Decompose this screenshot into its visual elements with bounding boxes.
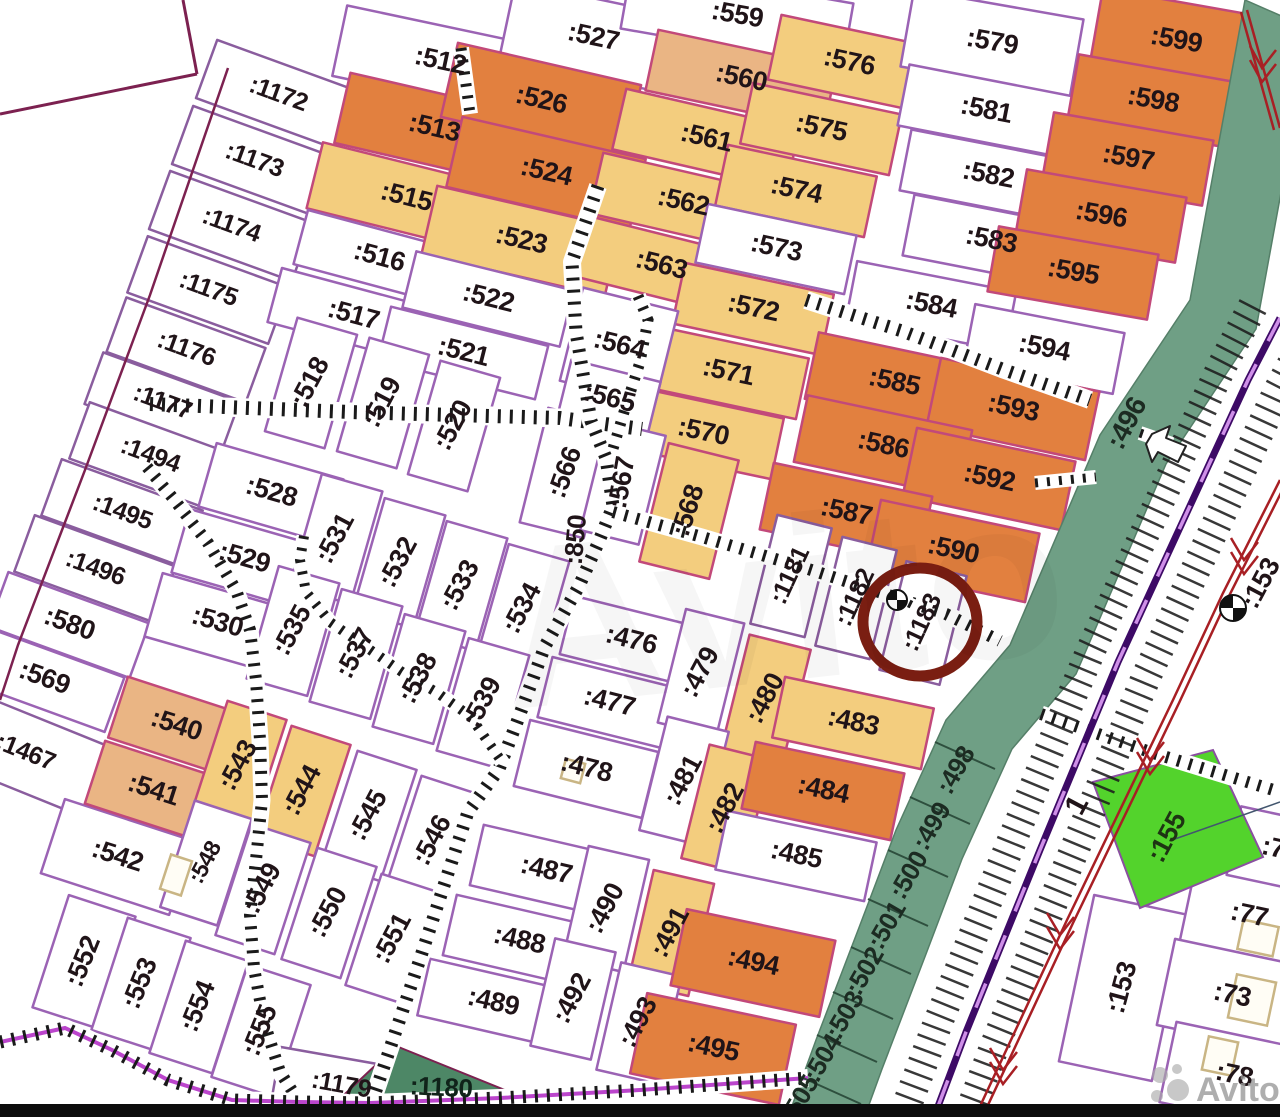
avito-logo-icon-0 [1152, 1067, 1168, 1083]
map-canvas: :1172:1173:1174:1175:1176:1177:1494:1495… [0, 0, 1280, 1117]
cadastral-map[interactable]: :1172:1173:1174:1175:1176:1177:1494:1495… [0, 0, 1280, 1117]
survey-marker-1-q1 [1233, 608, 1246, 621]
bottom-bar [0, 1104, 1280, 1117]
maroon-top-1 [183, 0, 197, 74]
avito-logo-icon-2 [1151, 1090, 1163, 1102]
avito-logo-icon-3 [1172, 1064, 1182, 1074]
watermark-avito: Avito [1196, 1071, 1280, 1109]
avito-logo-icon-1 [1167, 1079, 1189, 1101]
maroon-top-2 [0, 74, 197, 114]
map-label-1180: :1180 [409, 1070, 473, 1103]
